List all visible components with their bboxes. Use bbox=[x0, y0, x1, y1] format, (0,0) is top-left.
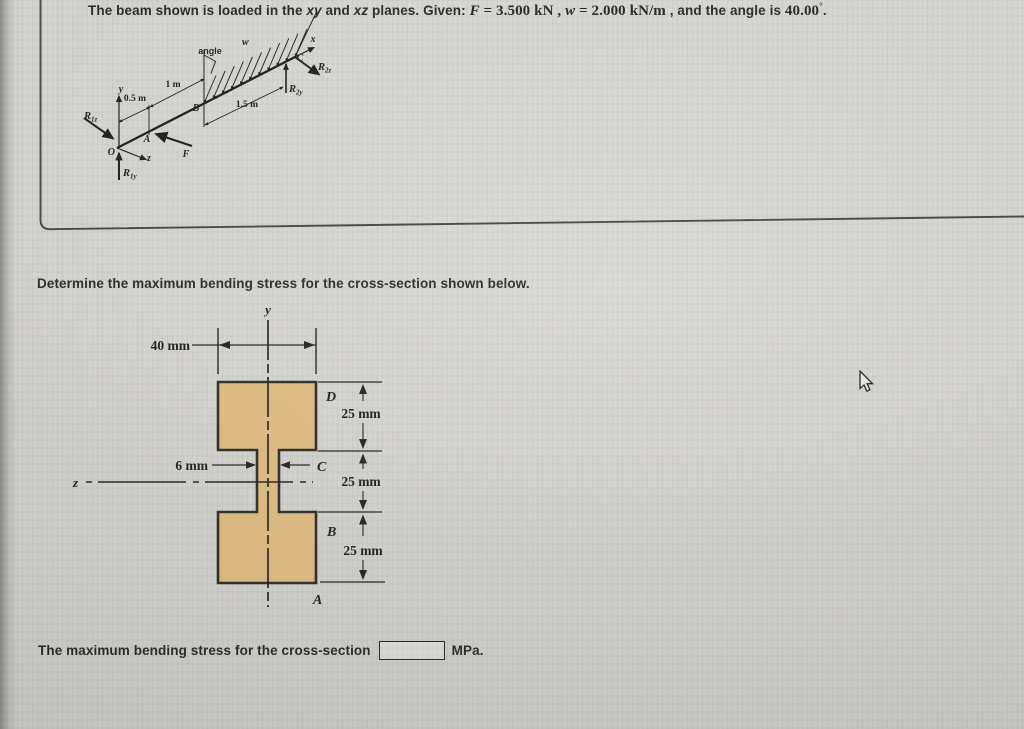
statement-period: . bbox=[823, 3, 827, 18]
xs-z-axis-label: z bbox=[72, 475, 79, 490]
y-axis-label: y bbox=[118, 84, 124, 95]
segment-dim-3: 25 mm bbox=[343, 543, 383, 558]
r2y-base: R bbox=[288, 84, 296, 95]
z-axis bbox=[117, 148, 146, 160]
angle-mark bbox=[204, 55, 216, 74]
point-c-label: C bbox=[297, 53, 304, 64]
z-axis-label: z bbox=[146, 153, 151, 164]
screen: The beam shown is loaded in the xy and x… bbox=[0, 0, 1024, 729]
r2y-sub: 2y bbox=[295, 89, 304, 97]
given-w-value: = 2.000 kN/m bbox=[575, 3, 666, 19]
given-f-symbol: F bbox=[470, 3, 480, 19]
beam-diagram: angle w x y z O A B C F 0.5 m 1 m 1.5 m … bbox=[70, 8, 360, 193]
dim-ab-label: 1 m bbox=[165, 80, 180, 90]
dim-oa bbox=[119, 107, 150, 122]
point-o-label: O bbox=[108, 147, 115, 158]
r1z-base: R bbox=[83, 111, 91, 122]
angle-label: angle bbox=[198, 46, 222, 56]
r1z-sub: 1z bbox=[91, 116, 98, 124]
segment-dim-2: 25 mm bbox=[341, 474, 381, 489]
point-a-label: A bbox=[143, 134, 151, 145]
r1z-label: R1z bbox=[83, 111, 98, 124]
x-axis-label: x bbox=[310, 34, 316, 45]
mouse-cursor bbox=[858, 370, 876, 394]
answer-input[interactable] bbox=[379, 641, 445, 660]
r2y-label: R2y bbox=[288, 84, 304, 97]
w-label: w bbox=[242, 37, 249, 48]
level-c-label: C bbox=[317, 460, 327, 475]
level-d-label: D bbox=[325, 390, 336, 405]
instruction-text: Determine the maximum bending stress for… bbox=[37, 276, 530, 291]
r1y-sub: 1y bbox=[130, 173, 138, 181]
web-dim-label: 6 mm bbox=[175, 458, 208, 473]
answer-row: The maximum bending stress for the cross… bbox=[38, 641, 484, 660]
cross-section-diagram: y z 40 mm 6 mm D C B A 25 mm 25 mm 25 mm bbox=[70, 300, 400, 615]
segment-dim-1: 25 mm bbox=[341, 406, 381, 421]
dim-oa-label: 0.5 m bbox=[124, 94, 146, 104]
statement-text-3: planes. Given: bbox=[368, 3, 469, 18]
beam-axes-and-members bbox=[84, 48, 319, 181]
point-b-label: B bbox=[192, 103, 200, 114]
r2z-sub: 2z bbox=[324, 67, 332, 75]
level-a-label: A bbox=[312, 593, 322, 608]
force-f-arrow bbox=[156, 134, 192, 146]
r2z-base: R bbox=[317, 62, 325, 73]
statement-text-4: , and the angle is bbox=[666, 3, 785, 18]
xs-y-axis-label: y bbox=[263, 302, 271, 317]
level-b-label: B bbox=[326, 525, 336, 540]
r2z-label: R2z bbox=[317, 62, 332, 75]
separator: , bbox=[554, 3, 566, 19]
r1y-label: R1y bbox=[122, 168, 138, 181]
given-f-value: = 3.500 kN bbox=[480, 3, 554, 19]
given-angle-value: 40.00 bbox=[785, 3, 819, 19]
width-dim-label: 40 mm bbox=[151, 338, 191, 353]
given-w-symbol: w bbox=[565, 3, 575, 19]
r1y-base: R bbox=[122, 168, 130, 179]
force-f-label: F bbox=[182, 149, 190, 160]
answer-unit: MPa. bbox=[452, 643, 484, 658]
dim-bc-label: 1.5 m bbox=[236, 100, 258, 110]
answer-prefix: The maximum bending stress for the cross… bbox=[38, 643, 371, 658]
